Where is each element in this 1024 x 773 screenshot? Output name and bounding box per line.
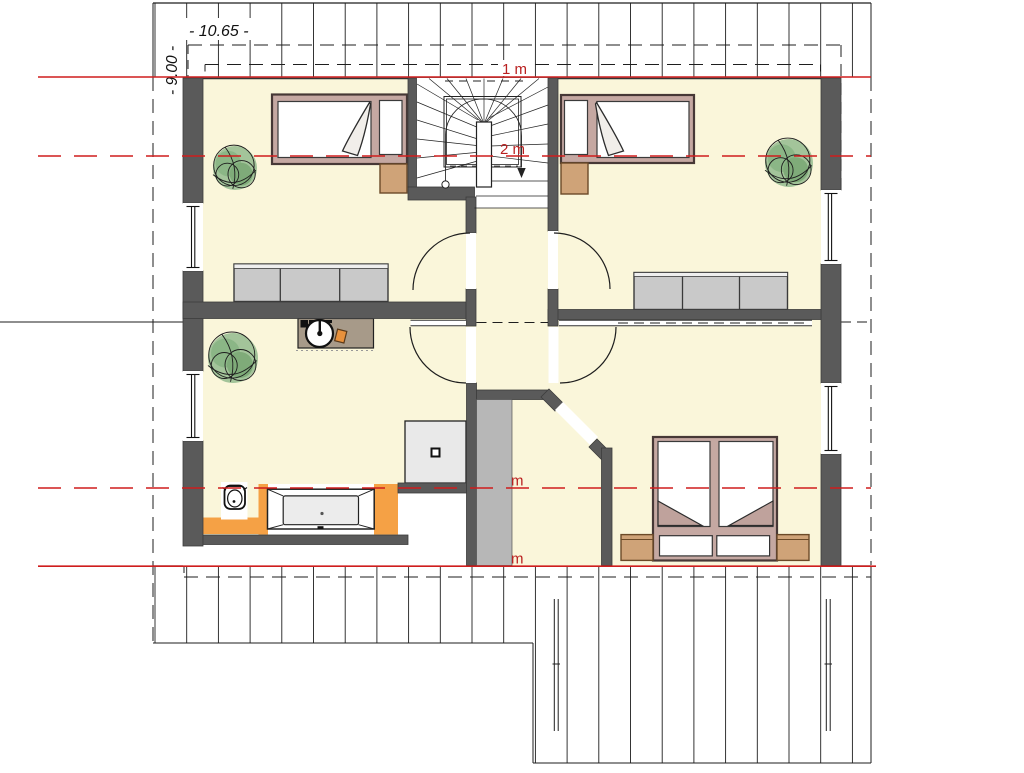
svg-text:1 m: 1 m: [502, 61, 527, 78]
svg-text:2 m: 2 m: [500, 141, 525, 158]
svg-text:m: m: [511, 473, 524, 490]
svg-text:- 9.00 -: - 9.00 -: [164, 46, 181, 95]
svg-text:m: m: [511, 551, 524, 568]
svg-text:- 10.65 -: - 10.65 -: [189, 23, 249, 40]
